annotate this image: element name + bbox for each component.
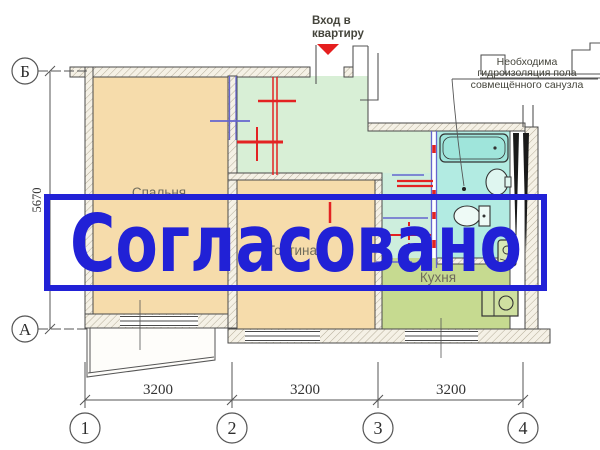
axis-label-a: А: [19, 320, 32, 339]
wall-top-left: [70, 67, 310, 77]
entrance-arrow-icon: [317, 44, 339, 55]
column-label-4: 4: [519, 418, 528, 438]
dim-span-1: 3200: [143, 382, 173, 398]
floor-plan-page: Спальня Гостиная Кухня Вход в квартиру Н…: [0, 0, 600, 450]
column-label-1: 1: [81, 418, 90, 438]
wall-hall-living: [228, 173, 382, 180]
dim-span-2: 3200: [290, 382, 320, 398]
entrance-annotation: Вход в квартиру: [312, 15, 365, 55]
column-label-3: 3: [374, 418, 383, 438]
entrance-note-line1: Вход в: [312, 15, 351, 27]
entrance-note-line2: квартиру: [312, 28, 365, 40]
waterproofing-note-line3: совмещённого санузла: [471, 79, 584, 91]
leader-dot: [462, 187, 466, 191]
window-kitchen: [405, 330, 478, 342]
window-living: [245, 330, 320, 342]
floor-plan-image: Спальня Гостиная Кухня Вход в квартиру Н…: [0, 0, 600, 450]
approval-stamp: Согласовано: [47, 197, 544, 290]
column-label-2: 2: [228, 418, 237, 438]
dim-vertical: 5670: [30, 188, 44, 213]
waterproofing-note-line2: гидроизоляция пола: [477, 67, 576, 79]
wall-bathroom-top: [368, 123, 525, 131]
dim-span-3: 3200: [436, 382, 466, 398]
wall-top-right-stub: [344, 67, 353, 77]
axis-label-b: Б: [20, 62, 30, 81]
stamp-text: Согласовано: [70, 198, 522, 290]
window-bedroom: [120, 315, 198, 327]
bathtub-icon: [440, 134, 508, 162]
